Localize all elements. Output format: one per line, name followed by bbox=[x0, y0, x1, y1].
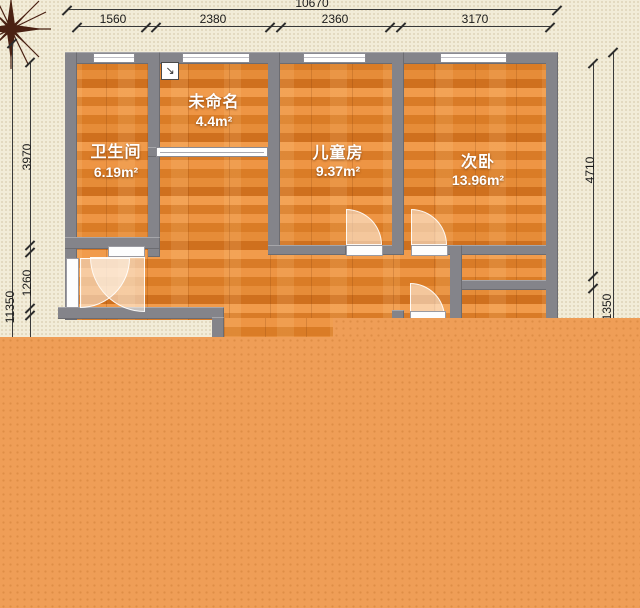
dim-tick bbox=[385, 22, 396, 33]
door-entrance[interactable] bbox=[66, 258, 79, 308]
window-kids[interactable] bbox=[303, 53, 366, 63]
wall-unnamed-kids-divider[interactable] bbox=[268, 52, 280, 255]
dim-label: 1560 bbox=[73, 13, 153, 25]
window-unnamed[interactable] bbox=[182, 53, 250, 63]
dim-tick bbox=[62, 5, 73, 16]
dim-label: 10670 bbox=[262, 0, 362, 9]
room-area-bathroom: 6.19m² bbox=[94, 164, 138, 180]
dim-tick bbox=[552, 5, 563, 16]
sliding-door[interactable] bbox=[156, 147, 268, 157]
wall-hall-horizontal[interactable] bbox=[462, 280, 558, 290]
wall-right[interactable] bbox=[546, 52, 558, 320]
window-master[interactable] bbox=[440, 53, 507, 63]
wall-hall-vertical[interactable] bbox=[450, 245, 462, 320]
room-area-kids: 9.37m² bbox=[316, 163, 360, 179]
floor-corridor-extension bbox=[224, 318, 333, 338]
door-bathroom[interactable] bbox=[108, 246, 145, 257]
dim-label: 3970 bbox=[21, 127, 33, 187]
dim-tick bbox=[545, 22, 556, 33]
window-bathroom[interactable] bbox=[93, 53, 135, 63]
dim-label: 4710 bbox=[584, 140, 596, 200]
dim-label: 2380 bbox=[173, 13, 253, 25]
room-label-master: 次卧 bbox=[461, 148, 495, 172]
wall-kids-bottom[interactable] bbox=[268, 245, 346, 255]
dim-tick bbox=[276, 22, 287, 33]
room-label-bathroom: 卫生间 bbox=[90, 138, 141, 162]
room-area-unnamed: 4.4m² bbox=[196, 113, 233, 129]
wall-kids-master-divider[interactable] bbox=[392, 52, 404, 255]
room-label-kids: 儿童房 bbox=[312, 139, 363, 163]
annotation-icon[interactable]: ↘ bbox=[161, 62, 179, 80]
dim-label: 3170 bbox=[435, 13, 515, 25]
dim-line-right-overall bbox=[613, 52, 614, 318]
orange-overlay-bottom bbox=[0, 337, 640, 608]
wall-step-down[interactable] bbox=[212, 317, 224, 339]
door-master[interactable] bbox=[411, 245, 448, 256]
room-label-unnamed: 未命名 bbox=[188, 88, 239, 112]
dim-label: 11350 bbox=[4, 277, 16, 337]
floor-plan-canvas[interactable]: 10670 1560 2380 2360 3170 11350 3970 126… bbox=[0, 0, 640, 608]
dim-tick bbox=[265, 22, 276, 33]
dim-tick bbox=[396, 22, 407, 33]
door-kids[interactable] bbox=[346, 245, 383, 256]
dim-label: 2360 bbox=[295, 13, 375, 25]
room-area-master: 13.96m² bbox=[452, 172, 504, 188]
wall-master-bottom[interactable] bbox=[448, 245, 558, 255]
